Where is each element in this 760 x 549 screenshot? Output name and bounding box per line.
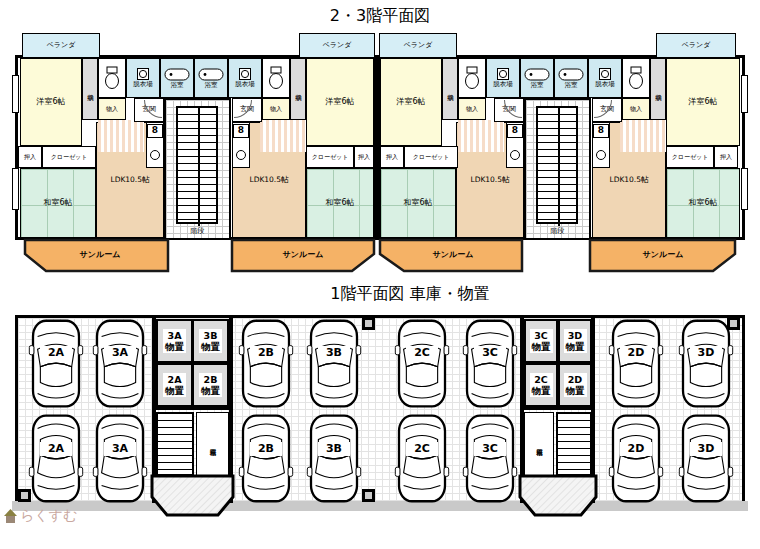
car-2c-bottom [394,412,450,504]
car-label: 2B [250,442,282,456]
car-label: 2C [406,442,438,456]
car-label: 2A [40,346,72,360]
car-label: 3C [474,442,506,456]
car-3c-top [462,318,518,410]
car-label: 3A [104,442,136,456]
entrance-porch-1 [152,476,233,515]
car-label: 2D [620,346,652,360]
car-2b-bottom [238,412,294,504]
car-label: 2B [250,346,282,360]
watermark: らくすむ [3,507,77,525]
car-3c-bottom [462,412,518,504]
car-label: 3B [318,442,350,456]
car-3b-top [306,318,362,410]
car-label: 2D [620,442,652,456]
car-label: 3A [104,346,136,360]
car-label: 3B [318,346,350,360]
car-label: 3C [474,346,506,360]
car-2b-top [238,318,294,410]
pillar [362,489,375,502]
house-icon [3,508,18,524]
car-label: 2C [406,346,438,360]
pillar [362,317,375,330]
car-3a-top [92,318,148,410]
entrance-porch-2 [520,476,596,515]
car-3b-bottom [306,412,362,504]
car-2a-bottom [28,412,84,504]
car-2c-top [394,318,450,410]
car-3d-top [678,318,734,410]
car-2d-top [608,318,664,410]
car-3a-bottom [92,412,148,504]
car-label: 3D [690,346,722,360]
car-label: 2A [40,442,72,456]
car-2d-bottom [608,412,664,504]
watermark-text: らくすむ [20,507,77,525]
car-2a-top [28,318,84,410]
car-label: 3D [690,442,722,456]
floorplan-image: 2・3階平面図 ベランダ ベランダ ベランダ ベランダ 洋室6帖 収納 物入 脱… [0,0,760,549]
car-3d-bottom [678,412,734,504]
